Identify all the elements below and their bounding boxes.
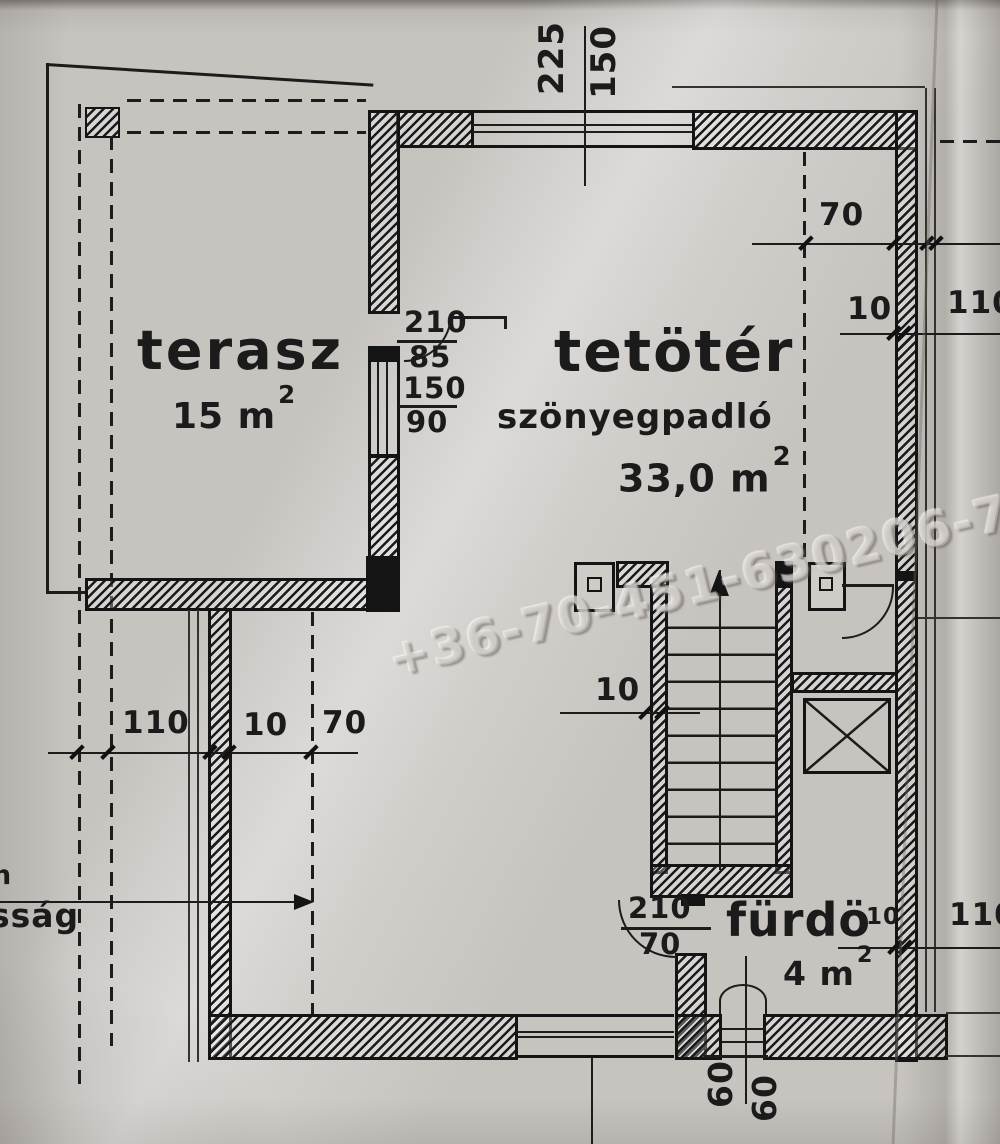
left-wall-upper <box>368 110 400 314</box>
window-pane-line <box>472 131 694 133</box>
dim-furdo-eaves: 110 <box>949 900 1000 931</box>
top-wall-left <box>396 110 474 148</box>
threshold-line-1 <box>722 1028 766 1030</box>
room-label-furdo: fürdö <box>726 897 871 943</box>
dim-line-right-70 <box>752 243 1000 245</box>
top-wall-right <box>692 110 918 150</box>
kneewall-dashed-right <box>803 152 806 560</box>
window-pane-line <box>472 124 694 126</box>
room-label-terasz: terasz <box>137 324 344 378</box>
dim-left-eaves: 110 <box>122 708 190 739</box>
window-pane-line <box>386 362 388 454</box>
furdo-corner-block <box>675 1014 722 1060</box>
stair-wall-right <box>775 584 793 874</box>
basin-arc <box>719 984 767 1015</box>
shaft-x-icon <box>806 701 888 771</box>
closet-door-arc <box>842 587 894 639</box>
window-pane-line <box>377 362 379 454</box>
lower-left-wall <box>208 608 232 1060</box>
stair-center-line <box>719 570 721 870</box>
terasz-area-value: 15 m <box>172 396 276 437</box>
wall-face-line-2 <box>197 610 199 1062</box>
dim-extension-bottom <box>591 1058 593 1144</box>
furdo-bottom-wall <box>763 1014 948 1060</box>
shaft-box <box>803 698 891 774</box>
terasz-outline-bottom <box>46 591 88 594</box>
roof-overhang-dashed-top1 <box>127 99 366 102</box>
tetoter-area-value: 33,0 m <box>618 457 771 501</box>
closet-ext-line <box>918 617 1000 619</box>
edge-text-fragment-upper: n <box>0 862 12 889</box>
furdo-area-sup: 2 <box>857 942 874 968</box>
terasz-bottom-wall <box>85 578 369 611</box>
room-area-tetoter: 33,0 m2 <box>618 458 792 498</box>
dim-left-offset: 70 <box>322 708 367 739</box>
stair-treads <box>668 602 775 868</box>
dim-terasz-door-w: 85 <box>409 343 451 372</box>
closet-bottom-wall <box>791 672 898 693</box>
dim-basin-right: 60 <box>748 1074 781 1122</box>
dim-terasz-window-h: 150 <box>403 374 467 403</box>
dim-furdo-door-w: 70 <box>639 930 681 959</box>
roof-overhang-dashed-top2 <box>127 131 366 134</box>
furdo-area-value: 4 m <box>783 954 855 993</box>
dim-right-offset: 70 <box>819 200 864 231</box>
bottom-ext-line-right <box>946 1012 1000 1014</box>
room-floor-note-tetoter: szönyegpadló <box>497 400 773 434</box>
leader-arrowhead <box>294 894 314 910</box>
edge-text-fragment-lower: sság <box>0 899 79 932</box>
bottom-ext-line-right-2 <box>946 1055 1000 1057</box>
room-label-tetoter: tetötér <box>554 324 794 381</box>
terasz-area-sup: 2 <box>278 380 296 409</box>
dim-left-wall: 10 <box>243 710 288 741</box>
left-wall-stub <box>368 346 400 360</box>
eaves-line-top <box>672 86 925 88</box>
terasz-door-leader-stub <box>504 316 507 329</box>
top-window-225 <box>472 110 694 148</box>
bottom-window <box>516 1014 674 1058</box>
wall-face-line-1 <box>188 610 190 1062</box>
kneewall-dashed-left <box>311 612 314 1014</box>
terasz-outline-top <box>46 63 374 86</box>
terasz-corner-pier <box>85 107 120 138</box>
dim-line-stairs <box>560 712 700 714</box>
room-area-terasz: 15 m2 <box>172 395 296 435</box>
terasz-outline-left <box>46 63 49 594</box>
dim-right-wall: 10 <box>847 294 892 325</box>
window-pane-line <box>516 1036 674 1038</box>
threshold-line-2 <box>722 1041 766 1043</box>
roof-overhang-dashed-left1 <box>78 104 81 1084</box>
dim-furdo-door-h: 210 <box>628 894 692 923</box>
tetoter-area-sup: 2 <box>773 442 792 472</box>
dim-top-window-width: 225 <box>535 21 569 95</box>
dim-terasz-door-h: 210 <box>404 308 468 337</box>
dim-terasz-window-w: 90 <box>406 408 448 437</box>
dim-top-window-height: 150 <box>587 25 621 99</box>
terasz-window-150 <box>368 360 400 456</box>
room-area-furdo: 4 m2 <box>783 955 873 990</box>
dim-furdo-wall: 10 <box>866 906 900 929</box>
bottom-wall-left <box>208 1014 518 1060</box>
floor-plan-photo: 225 150 210 85 150 90 70 10 110 110 10 7… <box>0 0 1000 1144</box>
dim-stair-wall: 10 <box>595 675 640 706</box>
wall-junction-block <box>366 556 400 612</box>
window-pane-line <box>516 1031 674 1033</box>
dim-right-eaves: 110 <box>947 288 1000 319</box>
dim-line-right-10 <box>840 333 1000 335</box>
stair-wall-left <box>650 584 668 874</box>
roof-dashed-top-right <box>940 140 1000 143</box>
threshold-bottom-line <box>704 1055 768 1058</box>
dim-basin-left: 60 <box>704 1060 737 1108</box>
